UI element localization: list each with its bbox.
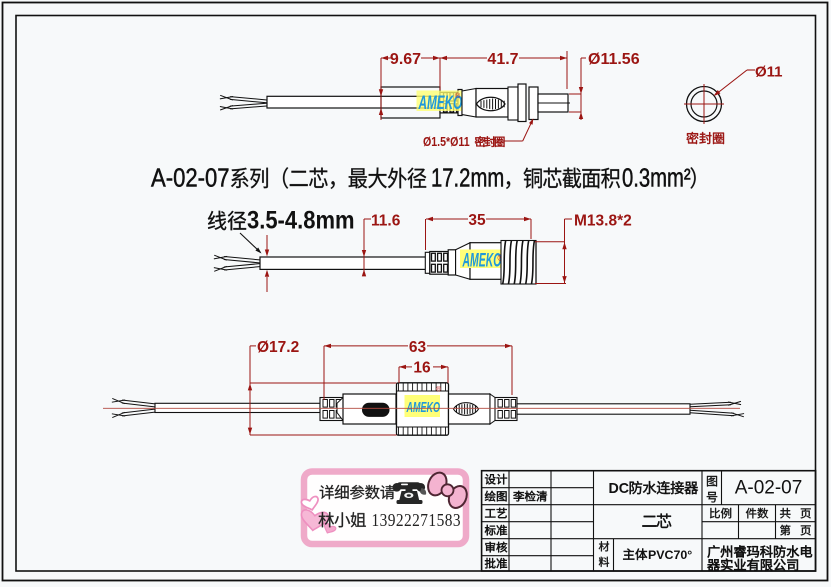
svg-text:11.6: 11.6 xyxy=(371,213,401,230)
svg-text:13922271583: 13922271583 xyxy=(372,510,461,530)
svg-text:®: ® xyxy=(455,92,461,100)
svg-text:Ø11.56: Ø11.56 xyxy=(588,51,640,68)
svg-text:DC: DC xyxy=(609,481,630,497)
svg-text:®: ® xyxy=(436,386,442,394)
svg-text:AMEKO: AMEKO xyxy=(406,399,440,416)
svg-text:M13.8*2: M13.8*2 xyxy=(574,213,632,230)
svg-text:3.5-4.8mm: 3.5-4.8mm xyxy=(247,206,355,234)
svg-text:63: 63 xyxy=(409,339,427,356)
svg-text:AMEKO: AMEKO xyxy=(462,250,502,271)
svg-text:0.3mm²: 0.3mm² xyxy=(622,163,691,192)
svg-text:A-02-07: A-02-07 xyxy=(735,478,803,499)
svg-text:Ø1.5*Ø11: Ø1.5*Ø11 xyxy=(423,135,470,149)
svg-text:41.7: 41.7 xyxy=(487,51,518,68)
svg-text:PVC70°: PVC70° xyxy=(648,548,692,562)
svg-text:9.67: 9.67 xyxy=(390,51,421,68)
svg-text:17.2mm: 17.2mm xyxy=(431,163,504,192)
svg-text:16: 16 xyxy=(413,360,431,377)
svg-text:35: 35 xyxy=(468,212,486,229)
svg-text:A-02-07: A-02-07 xyxy=(151,164,230,193)
svg-text:Ø17.2: Ø17.2 xyxy=(257,339,299,356)
svg-text:Ø11: Ø11 xyxy=(755,64,783,81)
